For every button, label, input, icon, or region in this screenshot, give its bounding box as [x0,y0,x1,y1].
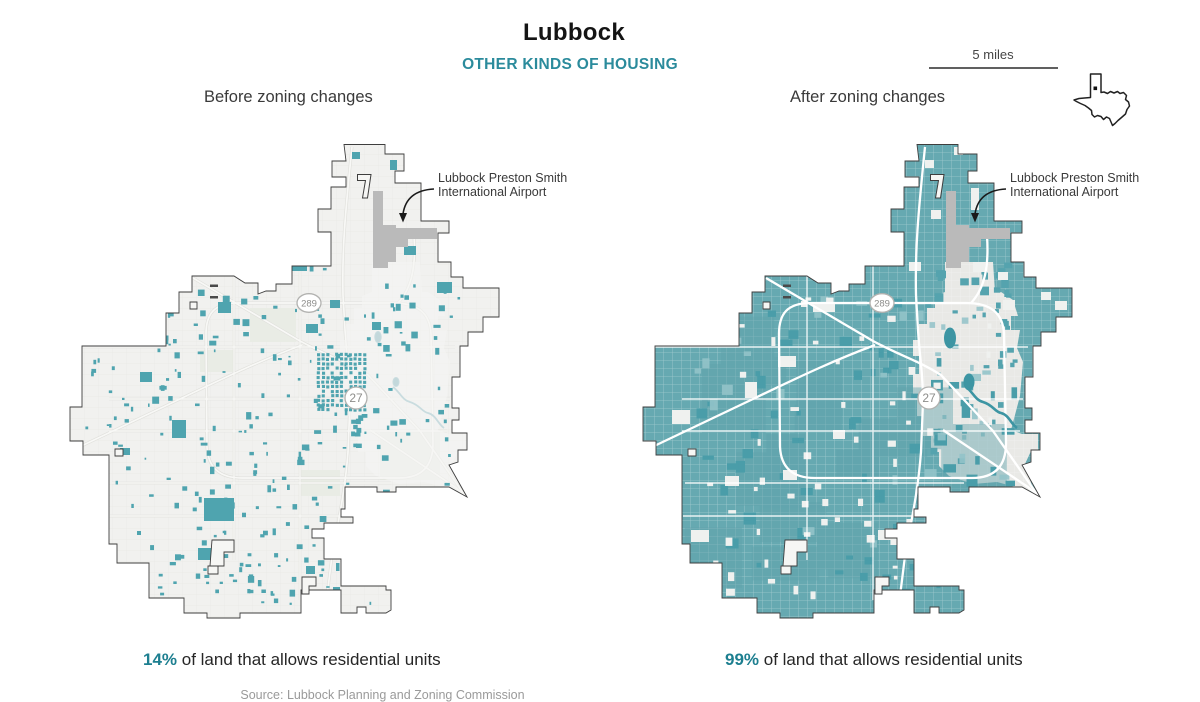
svg-text:International Airport: International Airport [438,185,547,199]
svg-text:Lubbock Preston Smith: Lubbock Preston Smith [1010,171,1139,185]
svg-text:International Airport: International Airport [1010,185,1119,199]
svg-text:Lubbock Preston Smith: Lubbock Preston Smith [438,171,567,185]
